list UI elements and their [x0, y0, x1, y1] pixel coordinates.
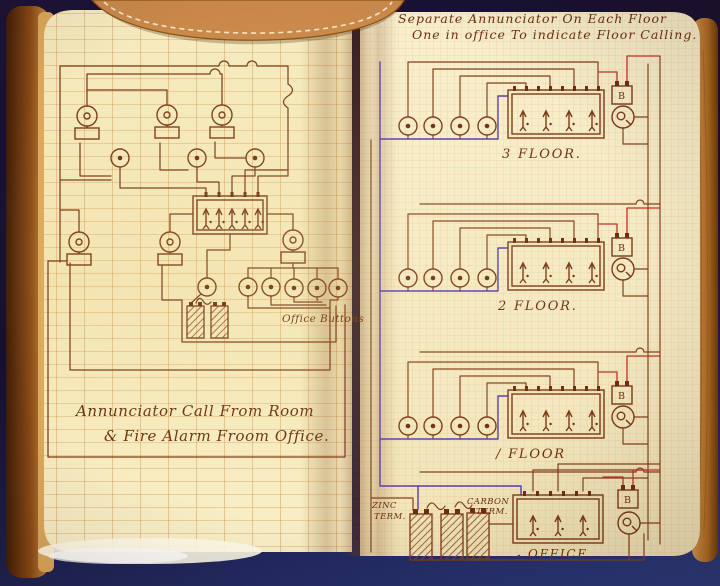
battery-box-label: B: [618, 91, 625, 102]
battery-cell-icon: [211, 302, 228, 338]
left-page: [38, 10, 352, 564]
battery-box-label: B: [624, 495, 631, 506]
right-title-line2: One in office To indicate Floor Calling.: [412, 27, 697, 42]
carbon-term-label-line1: CARBON: [467, 497, 509, 507]
left-caption-line2: & Fire Alarm Froom Office.: [104, 427, 329, 445]
battery-box-label: B: [618, 243, 625, 254]
battery-cell-icon: [410, 509, 432, 560]
floor-1-label: / FLOOR: [494, 447, 566, 462]
battery-cell-icon: [441, 509, 463, 560]
zinc-term-label-line2: TERM.: [374, 512, 406, 522]
right-title-line1: Separate Annunciator On Each Floor: [398, 11, 667, 26]
floor-2-label: 2 FLOOR.: [497, 299, 578, 314]
battery-cell-icon: [187, 302, 204, 338]
battery-box-label: B: [618, 391, 625, 402]
office-buttons-label: Office Buttons: [282, 313, 364, 325]
notebook-photo: Office Buttons Annunciator Call From Roo…: [0, 0, 720, 586]
zinc-term-label-line1: ZINC: [371, 501, 397, 511]
carbon-term-label-line2: TERM.: [476, 507, 508, 517]
office-label: OFFICE.: [528, 547, 594, 561]
floor-3-label: 3 FLOOR.: [502, 147, 582, 162]
left-caption-line1: Annunciator Call From Room: [74, 402, 314, 420]
